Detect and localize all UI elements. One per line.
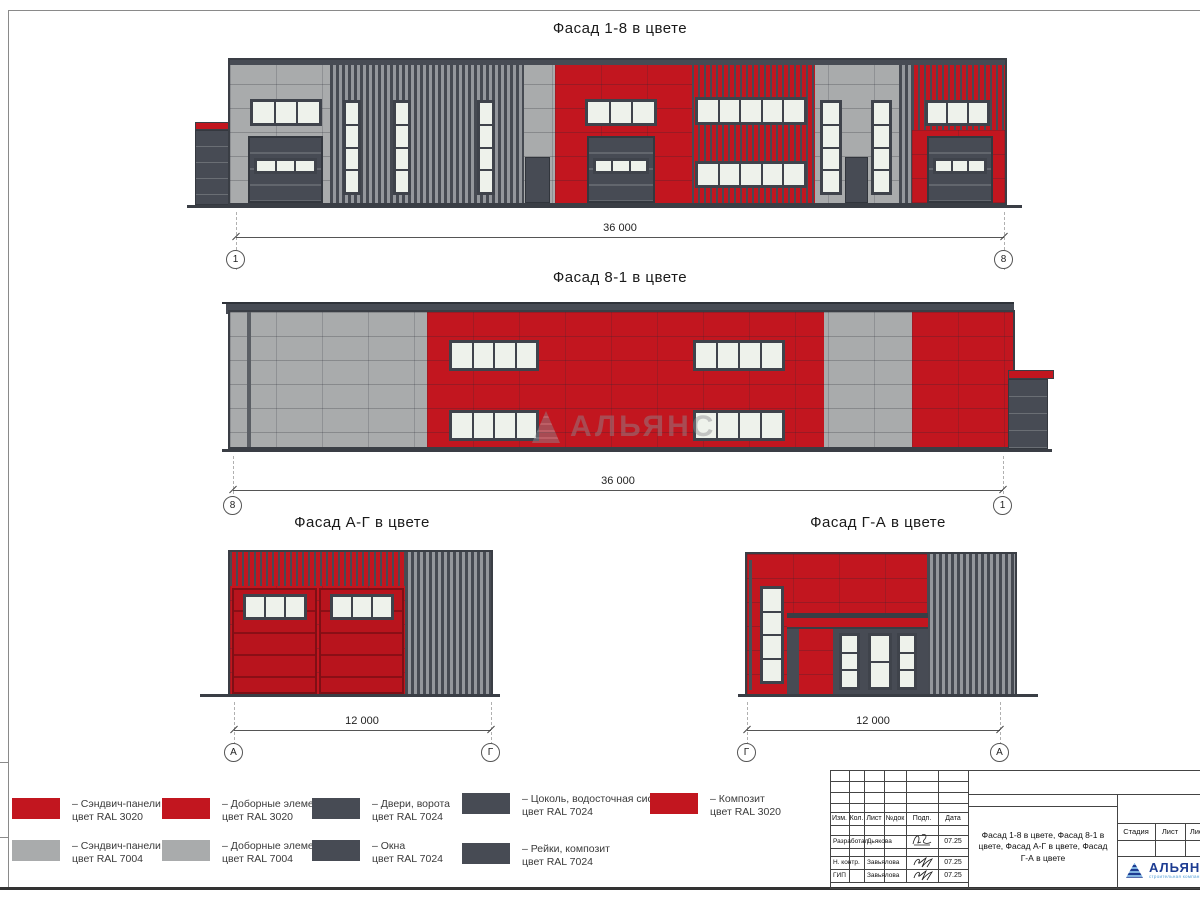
signature [912,869,934,882]
frame-top [8,10,1200,11]
legend-item: – Цоколь, водосточная системацвет RAL 70… [462,793,676,818]
dimension-value: 36 000 [601,475,635,487]
legend-swatch [312,798,360,819]
legend-label: – Двери, воротацвет RAL 7024 [372,798,450,823]
window-pane [373,597,391,617]
red-ribbed-band [230,552,405,586]
window-pane [740,413,760,438]
red-gate [232,588,317,694]
window-pane [631,161,646,171]
facade-1-8-title: Фасад 1-8 в цвете [470,20,770,37]
tb-line [830,882,968,883]
tb-header-cell: Подп. [906,813,938,824]
legend-label: – Окнацвет RAL 7024 [372,840,443,865]
legend-swatch [12,840,60,861]
annex-left [195,122,230,205]
window-pane [900,636,914,652]
legend-swatch [162,798,210,819]
sectional-gate [927,136,993,203]
axis-marker: 8 [994,250,1013,269]
annex-red-cap [195,122,230,130]
ribbon-window [695,97,807,125]
dimension-value: 36 000 [603,222,637,234]
window-pane [495,343,515,368]
window-pane [346,149,358,170]
entrance-door [868,633,892,690]
window-pane [784,164,804,185]
window-pane [698,100,718,122]
tb-sheet: Лист [1155,824,1185,839]
window-pane [396,103,408,124]
tall-window [393,100,411,195]
facade-a-g-drawing [200,548,500,700]
gate-window [933,158,987,174]
ground-line [222,449,1052,452]
ribbed-panel-section [405,552,491,694]
signature [912,856,934,869]
ground-line [200,694,500,697]
frame-tick-1 [0,762,8,763]
window-pane [762,343,782,368]
red-panel-section [912,312,1013,447]
window-pane [823,149,839,170]
window-pane [257,161,275,171]
tb-name: Завьялова [865,870,905,881]
tb-line [906,770,907,882]
dimension-line [233,490,1003,491]
tall-window [760,586,784,684]
ribbed-panel-section [927,554,1015,694]
gate-window [330,594,394,620]
axis-marker: А [224,743,243,762]
legend-swatch [462,793,510,814]
window [250,99,322,126]
legend-swatch [312,840,360,861]
tb-sheets: Листов [1185,824,1200,839]
window-pane [611,102,632,123]
window-pane [253,102,274,123]
window [693,340,785,371]
facade-8-1-title: Фасад 8-1 в цвете [470,269,770,286]
tb-line [968,794,1200,795]
window-pane [928,103,946,123]
legend-swatch [162,840,210,861]
window-pane [346,171,358,192]
facade-1-8-body [228,58,1007,205]
tb-line [830,888,1200,889]
window-pane [823,126,839,147]
tb-line [830,825,968,826]
window-pane [474,343,494,368]
tb-header-cell: Кол. [849,813,864,824]
window-pane [871,636,889,661]
facade-g-a-title: Фасад Г-А в цвете [728,514,1028,531]
legend-swatch [650,793,698,814]
tb-line [830,803,968,804]
tb-line [830,792,968,793]
window-pane [874,149,889,170]
dimension-line [236,237,1004,238]
window-pane [842,636,857,652]
legend-item: – Сэндвич-панелицвет RAL 7004 [12,840,161,865]
signature [910,832,934,847]
downspout [247,312,251,447]
tb-date: 07.25 [938,836,968,847]
window-pane [596,161,611,171]
ground-line [738,694,1038,697]
tb-header-cell: №док [884,813,906,824]
window-pane [948,103,966,123]
window-pane [842,671,857,687]
tb-line [1117,840,1200,841]
window-pane [874,171,889,192]
legend: – Сэндвич-панелицвет RAL 3020– Доборные … [0,780,830,890]
window-pane [480,126,492,147]
window-pane [784,100,804,122]
ground-line [187,205,1022,208]
gate-window [243,594,307,620]
tb-line [1117,794,1118,888]
door [845,157,868,203]
legend-item: – Композитцвет RAL 3020 [650,793,781,818]
window-pane [969,161,984,171]
facade-1-8-drawing [195,58,1010,208]
window-pane [842,654,857,670]
window-pane [276,102,297,123]
door [525,157,550,203]
facade-a-g-body [228,550,493,696]
window-pane [298,102,319,123]
window-pane [286,597,304,617]
window-pane [936,161,951,171]
tb-date: 07.25 [938,857,968,868]
parapet-band [230,60,1005,65]
logo-name: АЛЬЯНС [1149,861,1200,874]
window-pane [871,663,889,688]
window-pane [823,103,839,124]
window-pane [480,171,492,192]
logo-text-group: АЛЬЯНС строительная компания [1149,861,1200,880]
sectional-gate [248,136,323,203]
window-pane [396,171,408,192]
watermark-text: АЛЬЯНС [570,410,716,444]
window-pane [396,126,408,147]
title-block: Изм. Кол. Лист №док Подп. Дата Разработа… [830,770,1200,890]
dimension-value: 12 000 [856,715,890,727]
dimension-line [234,730,491,731]
window-pane [763,660,781,682]
window-pane [698,164,718,185]
window-pane [296,161,314,171]
window [585,99,657,126]
window-pane [900,654,914,670]
sectional-gate [587,136,655,203]
window-pane [474,413,494,438]
red-gate [319,588,404,694]
window-pane [763,164,783,185]
legend-label: – Композитцвет RAL 3020 [710,793,781,818]
window-pane [763,589,781,611]
canopy-fascia [787,618,928,629]
tb-line [1117,856,1200,857]
window-pane [346,103,358,124]
window-pane [266,597,284,617]
window-pane [762,413,782,438]
drawing-sheet: Фасад 1-8 в цвете Фасад 8-1 в цвете Фаса… [0,0,1200,900]
ribbon-window [695,161,807,188]
entrance-panel [833,629,928,694]
tb-role: Разработал [831,836,864,847]
axis-marker: Г [737,743,756,762]
legend-item: – Окнацвет RAL 7024 [312,840,443,865]
window-pane [969,103,987,123]
dimension-value: 12 000 [345,715,379,727]
window-pane [696,343,716,368]
legend-item: – Сэндвич-панелицвет RAL 3020 [12,798,161,823]
window-pane [480,103,492,124]
window-pane [720,164,740,185]
annex-red-cap [1008,370,1054,379]
window-pane [246,597,264,617]
window-pane [900,671,914,687]
window-pane [613,161,628,171]
legend-swatch [12,798,60,819]
legend-item: – Двери, воротацвет RAL 7024 [312,798,450,823]
legend-label: – Рейки, композитцвет RAL 7024 [522,843,610,868]
window-pane [396,149,408,170]
tall-window [477,100,495,195]
tall-window [871,100,892,195]
window-pane [763,100,783,122]
window [449,340,539,371]
tb-date: 07.25 [938,870,968,881]
legend-label: – Сэндвич-панелицвет RAL 7004 [72,840,161,865]
facade-g-a-body [745,552,1017,696]
window [449,410,539,441]
window-pane [517,343,537,368]
window-pane [953,161,968,171]
tb-role: ГИП [831,870,864,881]
window-pane [763,636,781,658]
facade-g-a-drawing [738,548,1038,700]
tb-header-cell: Дата [938,813,968,824]
watermark: АЛЬЯНС [532,410,716,444]
window-pane [763,613,781,635]
annex-body [195,130,230,205]
axis-marker: Г [481,743,500,762]
legend-swatch [462,843,510,864]
ribbed-divider [899,60,912,203]
window-pane [588,102,609,123]
tb-line [830,770,1200,771]
window-pane [277,161,295,171]
tb-line [830,781,968,782]
annex-right [1008,368,1048,449]
window-pane [874,103,889,124]
legend-label: – Сэндвич-панелицвет RAL 3020 [72,798,161,823]
tb-stage: Стадия [1117,824,1155,839]
watermark-triangle-icon [532,411,560,443]
entrance-window [839,633,860,690]
company-logo: АЛЬЯНС строительная компания [1126,861,1200,880]
window-pane [333,597,351,617]
window-pane [741,100,761,122]
axis-marker: 1 [993,496,1012,515]
axis-marker: 1 [226,250,245,269]
entrance-window [897,633,917,690]
window-pane [353,597,371,617]
dimension-line [747,730,1000,731]
tb-role: Н. контр. [831,857,864,868]
window-pane [720,100,740,122]
tb-header-cell: Изм. [830,813,849,824]
legend-item: – Доборные элементыцвет RAL 3020 [162,798,332,823]
facade-a-g-title: Фасад А-Г в цвете [212,514,512,531]
legend-item: – Доборные элементыцвет RAL 7004 [162,840,332,865]
downspout [749,560,752,690]
tb-header-cell: Лист [864,813,884,824]
gate-window [254,158,317,174]
tall-window [343,100,361,195]
sheet-description: Фасад 1-8 в цвете, Фасад 8-1 в цвете, Фа… [969,807,1117,887]
tb-line [830,848,968,849]
gate-window [593,158,649,174]
window-pane [495,413,515,438]
window-pane [740,343,760,368]
axis-marker: 8 [223,496,242,515]
window-pane [480,149,492,170]
window-pane [874,126,889,147]
window-pane [718,343,738,368]
window-pane [346,126,358,147]
logo-tagline: строительная компания [1149,875,1200,880]
tall-window [820,100,842,195]
frame-left [8,10,9,888]
window-pane [741,164,761,185]
window-pane [823,171,839,192]
entrance-column [787,629,799,694]
window [925,100,990,126]
window-pane [452,413,472,438]
legend-item: – Рейки, композитцвет RAL 7024 [462,843,610,868]
annex-body [1008,379,1048,449]
window-pane [633,102,654,123]
tb-name: Завьялова [865,857,905,868]
window-pane [452,343,472,368]
logo-triangle-icon [1126,863,1143,878]
facade-8-1-drawing: АЛЬЯНС [222,300,1052,452]
tb-name: Дьякова [865,836,905,847]
window-pane [718,413,738,438]
axis-marker: А [990,743,1009,762]
